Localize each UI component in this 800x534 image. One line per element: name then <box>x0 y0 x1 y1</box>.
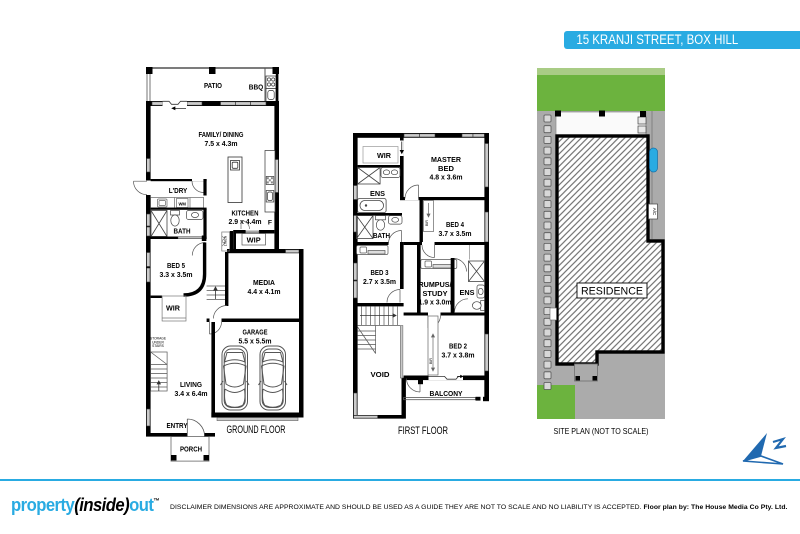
svg-text:STAIRS: STAIRS <box>152 344 164 348</box>
svg-text:2.7 x 3.5m: 2.7 x 3.5m <box>363 277 396 286</box>
svg-text:MEDIA: MEDIA <box>253 278 275 287</box>
svg-text:WIP: WIP <box>247 238 261 245</box>
svg-text:4.8 x 3.6m: 4.8 x 3.6m <box>430 173 463 182</box>
svg-text:WIR: WIR <box>166 306 180 313</box>
svg-text:3.4 x 6.4m: 3.4 x 6.4m <box>175 389 208 398</box>
svg-text:FIRST FLOOR: FIRST FLOOR <box>398 425 448 437</box>
svg-text:WM: WM <box>178 201 186 206</box>
svg-text:BED 4: BED 4 <box>446 220 464 229</box>
svg-text:F: F <box>268 220 272 227</box>
svg-text:7.5 x 4.3m: 7.5 x 4.3m <box>205 139 238 148</box>
svg-text:GROUND FLOOR: GROUND FLOOR <box>227 424 286 436</box>
svg-text:PATIO: PATIO <box>204 81 222 90</box>
svg-text:BATH: BATH <box>174 227 191 236</box>
svg-text:5.5 x 5.5m: 5.5 x 5.5m <box>239 337 272 346</box>
svg-text:LIVING: LIVING <box>180 380 202 389</box>
svg-text:BIR: BIR <box>425 220 429 226</box>
svg-text:3.7 x 3.8m: 3.7 x 3.8m <box>442 351 475 360</box>
svg-text:3.7 x 3.5m: 3.7 x 3.5m <box>439 229 472 238</box>
svg-text:WIR: WIR <box>377 153 391 160</box>
svg-text:1.9 x 3.0m: 1.9 x 3.0m <box>419 298 452 307</box>
svg-text:RESIDENCE: RESIDENCE <box>581 286 643 298</box>
svg-text:PORCH: PORCH <box>180 445 202 454</box>
svg-text:3.3 x 3.5m: 3.3 x 3.5m <box>160 270 193 279</box>
svg-text:BED 2: BED 2 <box>449 342 467 351</box>
svg-text:BATH: BATH <box>373 231 390 240</box>
svg-text:BBQ: BBQ <box>249 85 264 92</box>
svg-text:LINEN: LINEN <box>223 235 227 246</box>
svg-text:ENTRY: ENTRY <box>167 421 188 430</box>
svg-text:ENS: ENS <box>460 290 475 297</box>
svg-text:BALCONY: BALCONY <box>430 389 463 398</box>
svg-text:RUMPUS/: RUMPUS/ <box>419 280 452 289</box>
svg-text:FAMILY/ DINING: FAMILY/ DINING <box>199 130 244 139</box>
svg-text:MASTER: MASTER <box>431 155 462 164</box>
svg-text:VOID: VOID <box>371 370 390 379</box>
svg-text:A/C: A/C <box>652 208 657 216</box>
svg-text:4.4 x 4.1m: 4.4 x 4.1m <box>248 287 281 296</box>
svg-text:BIR: BIR <box>429 358 433 364</box>
svg-text:BED 5: BED 5 <box>167 261 185 270</box>
svg-text:BED 3: BED 3 <box>371 268 389 277</box>
svg-text:L'DRY: L'DRY <box>169 186 188 195</box>
svg-text:SITE PLAN (NOT TO SCALE): SITE PLAN (NOT TO SCALE) <box>554 426 649 436</box>
svg-text:ENS: ENS <box>370 191 385 198</box>
svg-text:GARAGE: GARAGE <box>243 328 268 337</box>
